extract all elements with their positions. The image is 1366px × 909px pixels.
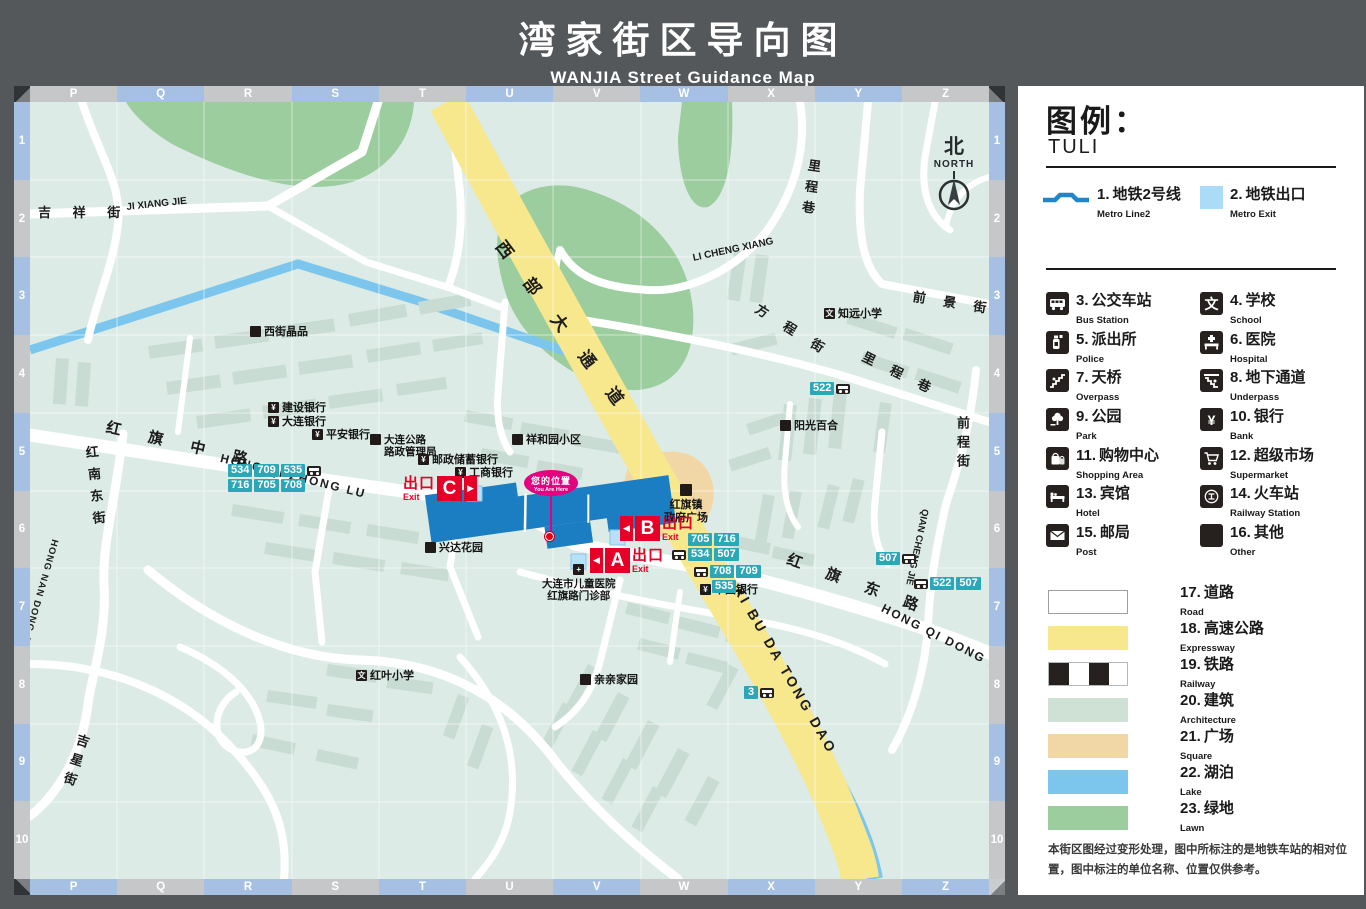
north-compass: 北 NORTH — [932, 130, 976, 219]
grid-col-label: W — [640, 86, 727, 102]
bus-route-chip: 522 — [810, 382, 834, 395]
divider — [1046, 166, 1336, 168]
bank-icon: ¥ — [268, 416, 279, 427]
grid-rows-right: 1 2 3 4 5 6 7 8 9 10 — [989, 102, 1005, 879]
compass-icon — [936, 170, 972, 214]
police-icon — [1046, 331, 1069, 354]
grid-col-label: X — [728, 86, 815, 102]
bus-route-chip: 507 — [714, 548, 738, 561]
grid-col-label: R — [204, 879, 291, 895]
grid-row-label: 2 — [14, 180, 30, 258]
exit-a-box: A — [605, 548, 630, 573]
grid-col-label: S — [292, 879, 379, 895]
place-icon — [425, 542, 436, 553]
grid-col-label: W — [640, 879, 727, 895]
legend-item-railway-station: 14.火车站Railway Station — [1200, 485, 1300, 521]
bus-stop-a-row2: 535 — [712, 580, 736, 593]
grid-col-label: U — [466, 86, 553, 102]
bus-route-chip: 709 — [736, 565, 760, 578]
legend-item-park: 9.公园Park — [1046, 408, 1122, 444]
grid-row-label: 10 — [14, 801, 30, 879]
exit-c-box: C — [437, 476, 462, 501]
bus-stop-north: 522 — [810, 382, 850, 395]
road-swatch — [1048, 590, 1128, 614]
frame-corner — [989, 86, 1005, 102]
bank-icon: ¥ — [312, 429, 323, 440]
bus-stop-south-3: 3 — [744, 686, 774, 699]
bus-stop-a-row1: 708709 — [694, 565, 761, 578]
exit-c-marker: 出口Exit C ▶ — [403, 476, 477, 502]
you-are-here-balloon: 您的位置 You Are Here — [524, 470, 578, 496]
bus-route-chip: 507 — [876, 552, 900, 565]
bank-icon: ¥ — [1200, 408, 1223, 431]
grid-col-label: T — [379, 879, 466, 895]
legend-item-hotel: 13.宾馆Hotel — [1046, 485, 1130, 521]
bus-route-chip: 522 — [930, 577, 954, 590]
map-canvas — [30, 102, 989, 879]
metro-line-icon — [1042, 186, 1090, 209]
railway-station-icon — [1200, 485, 1223, 508]
grid-row-label: 4 — [989, 335, 1005, 413]
grid-row-label: 8 — [14, 646, 30, 724]
place-icon — [250, 326, 261, 337]
you-are-here-dot — [545, 532, 554, 541]
exit-b-marker: ◀ B 出口Exit — [620, 516, 694, 542]
exit-word: 出口Exit — [632, 548, 664, 574]
place-postal-savings-bank: ¥邮政储蓄银行 — [418, 454, 498, 467]
you-are-here-pointer — [550, 495, 552, 536]
bus-stop-icon — [914, 579, 928, 589]
legend-item-school: 文 4.学校School — [1200, 292, 1276, 328]
bank-icon: ¥ — [700, 584, 711, 595]
metro-exit-icon — [1200, 186, 1223, 209]
bus-stop-icon — [836, 384, 850, 394]
grid-row-label: 9 — [989, 724, 1005, 802]
bus-stop-west-row1: 534709535 — [228, 464, 321, 477]
grid-col-label: P — [30, 879, 117, 895]
legend-item-bus-station: 3.公交车站Bus Station — [1046, 292, 1152, 328]
bus-route-chip: 716 — [228, 479, 252, 492]
grid-rows-left: 1 2 3 4 5 6 7 8 9 10 — [14, 102, 30, 879]
grid-row-label: 8 — [989, 646, 1005, 724]
legend-area-square: 21.广场Square — [1048, 728, 1234, 764]
bus-stop-icon — [760, 688, 774, 698]
road-label-qianchengjie: 前程街 — [956, 416, 969, 473]
bank-icon: ¥ — [418, 454, 429, 465]
legend-area-lake: 22.湖泊Lake — [1048, 764, 1234, 800]
school-icon: 文 — [1200, 292, 1223, 315]
legend-item-post: 15.邮局Post — [1046, 524, 1130, 560]
bus-route-chip: 716 — [714, 533, 738, 546]
grid-row-label: 3 — [989, 257, 1005, 335]
exit-word: 出口Exit — [403, 476, 435, 502]
hotel-icon — [1046, 485, 1069, 508]
bus-route-chip: 3 — [744, 686, 758, 699]
exit-arrow-icon: ◀ — [620, 516, 633, 541]
legend-area-road: 17.道路Road — [1048, 584, 1234, 620]
legend-item-shopping: 11.购物中心Shopping Area — [1046, 447, 1159, 483]
grid-row-label: 1 — [14, 102, 30, 180]
grid-col-label: P — [30, 86, 117, 102]
bus-route-chip: 534 — [228, 464, 252, 477]
bus-route-chip: 708 — [710, 565, 734, 578]
grid-row-label: 1 — [989, 102, 1005, 180]
place-icon — [370, 434, 381, 445]
place-zhiyuan-school: 文知远小学 — [824, 308, 882, 321]
legend-disclaimer: 本街区图经过变形处理，图中所标注的是地铁车站的相对位置，图中标注的单位名称、位置… — [1048, 840, 1348, 880]
hospital-icon: + — [573, 564, 584, 575]
bus-stop-icon — [694, 567, 708, 577]
exit-a-marker: ◀ A 出口Exit — [590, 548, 664, 574]
bus-route-chip: 709 — [254, 464, 278, 477]
grid-col-label: Z — [902, 86, 989, 102]
bus-icon — [1046, 292, 1069, 315]
place-xianghe-community: 祥和园小区 — [512, 434, 581, 447]
frame-corner — [14, 86, 30, 102]
exit-word: 出口Exit — [662, 516, 694, 542]
page-header: 湾家街区导向图 WANJIA Street Guidance Map — [0, 0, 1366, 88]
frame-corner — [989, 879, 1005, 895]
place-dalian-bank: ¥大连银行 — [268, 416, 326, 429]
grid-col-label: Q — [117, 86, 204, 102]
railway-swatch — [1048, 662, 1128, 686]
bus-stop-east-row: 522507 — [914, 577, 981, 590]
grid-col-label: Y — [815, 86, 902, 102]
legend-item-metro-exit: 2.地铁出口Metro Exit — [1200, 186, 1306, 222]
place-pingan-bank: ¥平安银行 — [312, 429, 370, 442]
legend-item-underpass: 8.地下通道Underpass — [1200, 369, 1306, 405]
bus-route-chip: 705 — [254, 479, 278, 492]
grid-row-label: 2 — [989, 180, 1005, 258]
place-icon — [780, 420, 791, 431]
grid-col-label: V — [553, 86, 640, 102]
grid-row-label: 5 — [989, 413, 1005, 491]
grid-row-label: 4 — [14, 335, 30, 413]
legend-area-architecture: 20.建筑Architecture — [1048, 692, 1236, 728]
exit-arrow-icon: ▶ — [464, 476, 477, 501]
place-yangguang: 阳光百合 — [780, 420, 838, 433]
bus-route-chip: 708 — [281, 479, 305, 492]
hospital-icon — [1200, 331, 1223, 354]
shopping-icon — [1046, 447, 1069, 470]
grid-row-label: 7 — [14, 568, 30, 646]
grid-row-label: 10 — [989, 801, 1005, 879]
bus-stop-west-row2: 716705708 — [228, 479, 305, 492]
place-xijiejingpin: 西街晶品 — [250, 326, 308, 339]
grid-col-label: R — [204, 86, 291, 102]
exit-arrow-icon: ◀ — [590, 548, 603, 573]
place-xingda-garden: 兴达花园 — [425, 542, 483, 555]
map-content: 吉 祥 街 JI XIANG JIE 红 旗 中 路 HONG QI ZHONG… — [30, 102, 989, 879]
exit-b-box: B — [635, 516, 660, 541]
road-label-jixiangjie: 吉 祥 街 — [38, 206, 129, 219]
grid-row-label: 9 — [14, 724, 30, 802]
divider — [1046, 268, 1336, 270]
bus-route-chip: 507 — [956, 577, 980, 590]
place-hongye-school: 文红叶小学 — [356, 670, 414, 683]
legend-item-overpass: 7.天桥Overpass — [1046, 369, 1122, 405]
grid-col-label: T — [379, 86, 466, 102]
park-icon — [1046, 408, 1069, 431]
legend-heading-en: TULI — [1048, 136, 1099, 159]
grid-col-label: X — [728, 879, 815, 895]
grid-col-label: Y — [815, 879, 902, 895]
bus-stop-icon — [307, 466, 321, 476]
lawn-swatch — [1048, 806, 1128, 830]
legend-area-expressway: 18.高速公路Expressway — [1048, 620, 1264, 656]
legend-item-hospital: 6.医院Hospital — [1200, 331, 1276, 367]
place-icon — [580, 674, 591, 685]
bus-route-chip: 535 — [712, 580, 736, 593]
bank-icon: ¥ — [268, 402, 279, 413]
legend-area-railway: 19.铁路Railway — [1048, 656, 1234, 692]
place-jianshe-bank: ¥建设银行 — [268, 402, 326, 415]
bus-stop-east-507: 507 — [876, 552, 916, 565]
legend-item-police: 5.派出所Police — [1046, 331, 1137, 367]
grid-col-label: V — [553, 879, 640, 895]
bus-route-chip: 535 — [281, 464, 305, 477]
grid-row-label: 6 — [989, 491, 1005, 569]
grid-columns-top: P Q R S T U V W X Y Z — [30, 86, 989, 102]
legend-area-lawn: 23.绿地Lawn — [1048, 800, 1234, 836]
grid-row-label: 7 — [989, 568, 1005, 646]
place-qinqin-homeland: 亲亲家园 — [580, 674, 638, 687]
bus-stop-icon — [672, 550, 686, 560]
bus-route-chip: 534 — [688, 548, 712, 561]
expressway-swatch — [1048, 626, 1128, 650]
page-title: 湾家街区导向图 — [0, 10, 1366, 64]
supermarket-icon — [1200, 447, 1223, 470]
grid-columns-bottom: P Q R S T U V W X Y Z — [30, 879, 989, 895]
grid-col-label: Z — [902, 879, 989, 895]
legend-item-metro-line: 1.地铁2号线Metro Line2 — [1042, 186, 1181, 222]
school-icon: 文 — [356, 670, 367, 681]
school-icon: 文 — [824, 308, 835, 319]
lake-swatch — [1048, 770, 1128, 794]
grid-col-label: S — [292, 86, 379, 102]
map-panel: P Q R S T U V W X Y Z P Q R S T U V W X … — [14, 86, 1005, 895]
legend-item-supermarket: 12.超级市场Supermarket — [1200, 447, 1314, 483]
legend-item-bank: ¥ 10.银行Bank — [1200, 408, 1284, 444]
legend-item-other: 16.其他Other — [1200, 524, 1284, 560]
page-subtitle: WANJIA Street Guidance Map — [0, 68, 1366, 88]
legend-heading: 图例： — [1046, 96, 1148, 141]
architecture-swatch — [1048, 698, 1128, 722]
underpass-icon — [1200, 369, 1223, 392]
frame-corner — [14, 879, 30, 895]
place-icon — [512, 434, 523, 445]
grid-row-label: 3 — [14, 257, 30, 335]
grid-col-label: U — [466, 879, 553, 895]
legend-panel: 图例： TULI 1.地铁2号线Metro Line2 2.地铁出口Metro … — [1018, 86, 1364, 895]
bus-stop-b-row2: 534507 — [672, 548, 739, 561]
bus-stop-b-row1: 705716 — [688, 533, 739, 546]
square-swatch — [1048, 734, 1128, 758]
post-icon — [1046, 524, 1069, 547]
grid-col-label: Q — [117, 879, 204, 895]
bus-stop-icon — [902, 554, 916, 564]
place-icon — [680, 484, 692, 496]
grid-row-label: 6 — [14, 491, 30, 569]
other-icon — [1200, 524, 1223, 547]
grid-row-label: 5 — [14, 413, 30, 491]
overpass-icon — [1046, 369, 1069, 392]
